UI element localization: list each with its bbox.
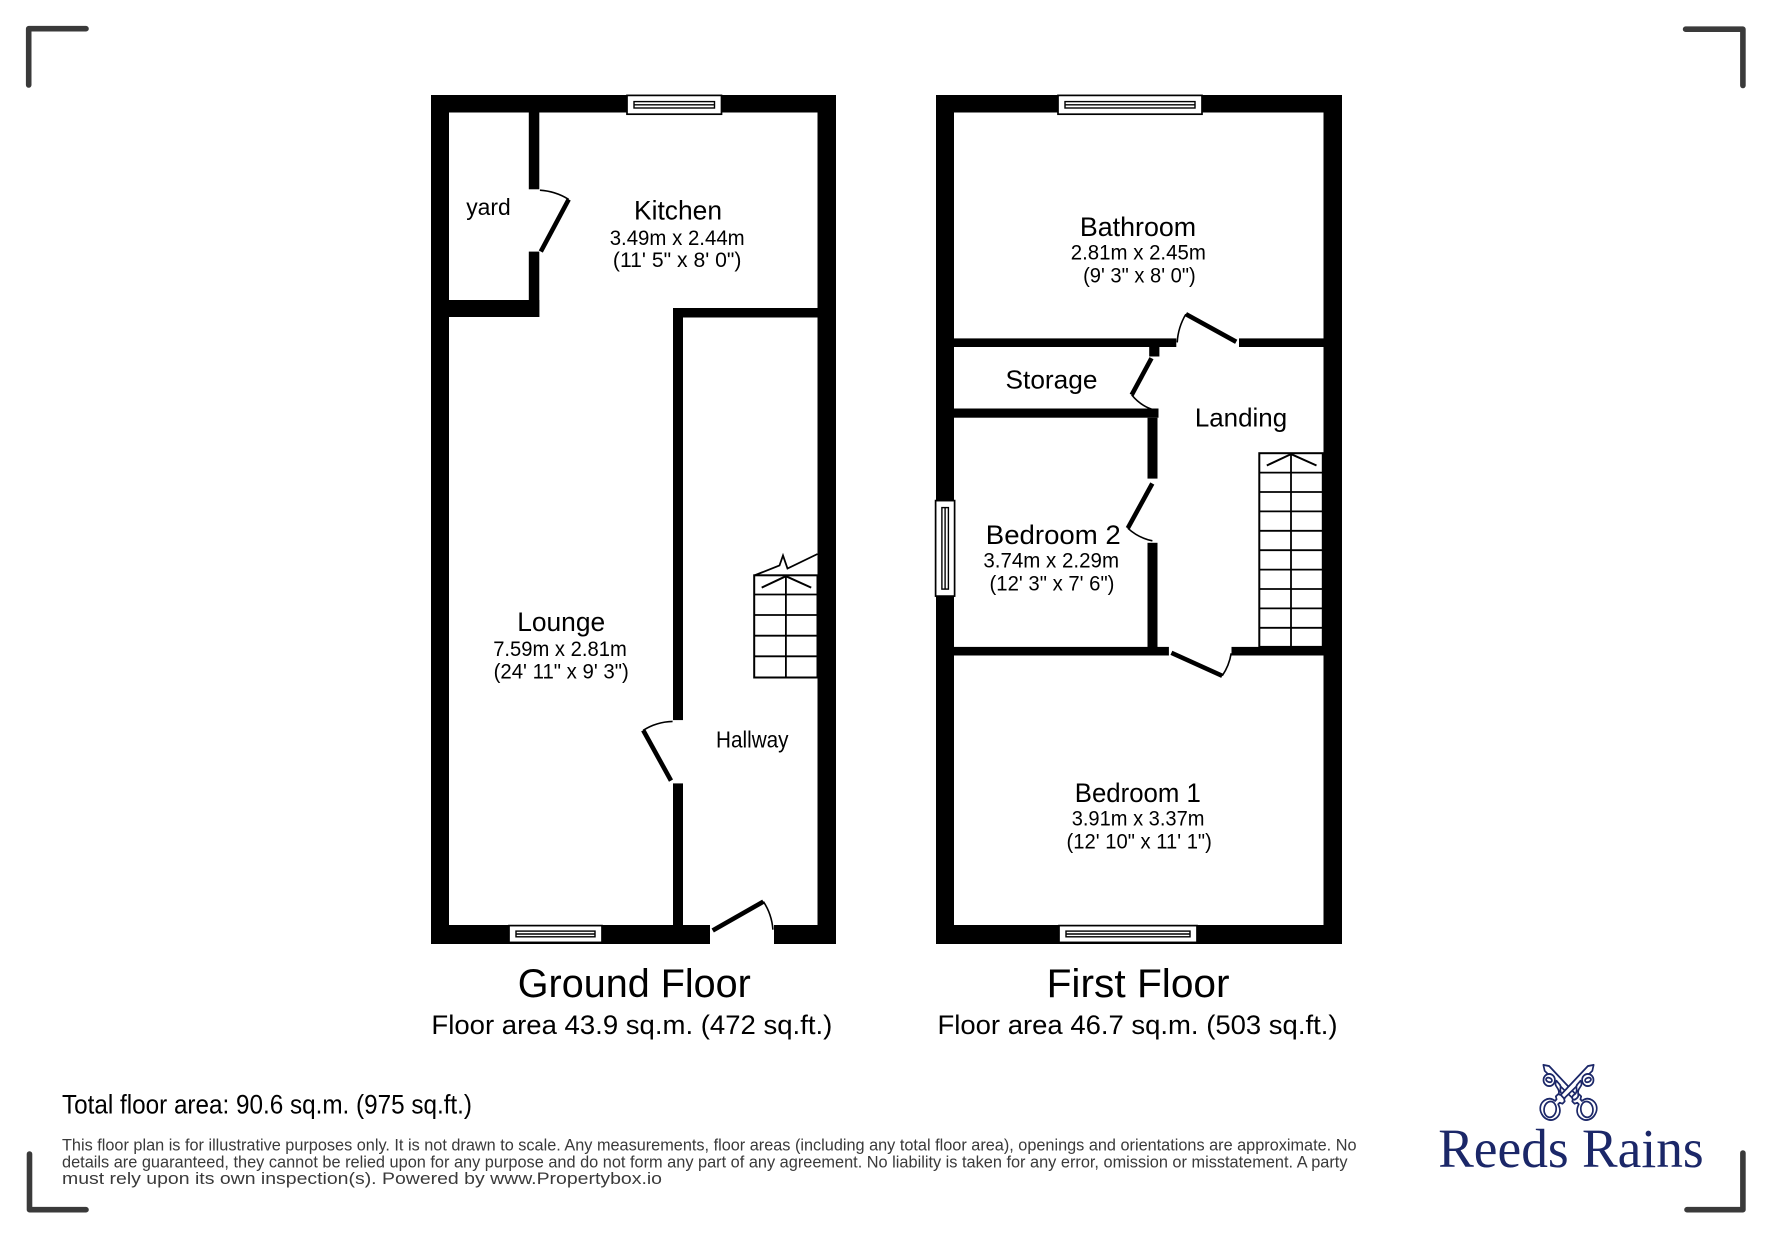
svg-text:Landing: Landing [1195,404,1287,432]
svg-text:(12' 3" x 7' 6"): (12' 3" x 7' 6") [990,572,1115,595]
svg-text:Storage: Storage [1006,366,1098,394]
svg-text:Ground Floor: Ground Floor [518,962,751,1006]
svg-text:Kitchen: Kitchen [634,196,722,226]
svg-text:2.81m x 2.45m: 2.81m x 2.45m [1071,241,1206,264]
svg-text:Hallway: Hallway [716,726,789,752]
svg-text:(11' 5" x 8' 0"): (11' 5" x 8' 0") [613,249,742,272]
svg-text:Bedroom 2: Bedroom 2 [986,520,1121,550]
svg-text:Bedroom 1: Bedroom 1 [1075,778,1201,808]
svg-text:yard: yard [466,194,511,220]
svg-text:First Floor: First Floor [1047,962,1230,1006]
svg-text:must rely upon its own inspect: must rely upon its own inspection(s). Po… [62,1169,662,1188]
svg-text:(9' 3" x 8' 0"): (9' 3" x 8' 0") [1083,264,1196,287]
svg-text:7.59m x 2.81m: 7.59m x 2.81m [493,638,627,661]
svg-text:Lounge: Lounge [517,607,605,637]
svg-text:3.74m x 2.29m: 3.74m x 2.29m [983,549,1119,572]
svg-text:3.91m x 3.37m: 3.91m x 3.37m [1072,807,1205,830]
svg-text:Total floor area: 90.6 sq.m. (: Total floor area: 90.6 sq.m. (975 sq.ft.… [62,1089,472,1120]
svg-text:3.49m x 2.44m: 3.49m x 2.44m [610,227,745,250]
svg-text:Floor area 46.7 sq.m. (503 sq.: Floor area 46.7 sq.m. (503 sq.ft.) [938,1010,1338,1040]
svg-text:Reeds Rains: Reeds Rains [1438,1118,1704,1179]
svg-text:(24' 11" x 9' 3"): (24' 11" x 9' 3") [494,660,629,683]
svg-text:(12' 10" x 11' 1"): (12' 10" x 11' 1") [1067,830,1212,853]
svg-text:Floor area 43.9 sq.m. (472 sq.: Floor area 43.9 sq.m. (472 sq.ft.) [431,1010,832,1040]
svg-text:Bathroom: Bathroom [1080,212,1196,242]
